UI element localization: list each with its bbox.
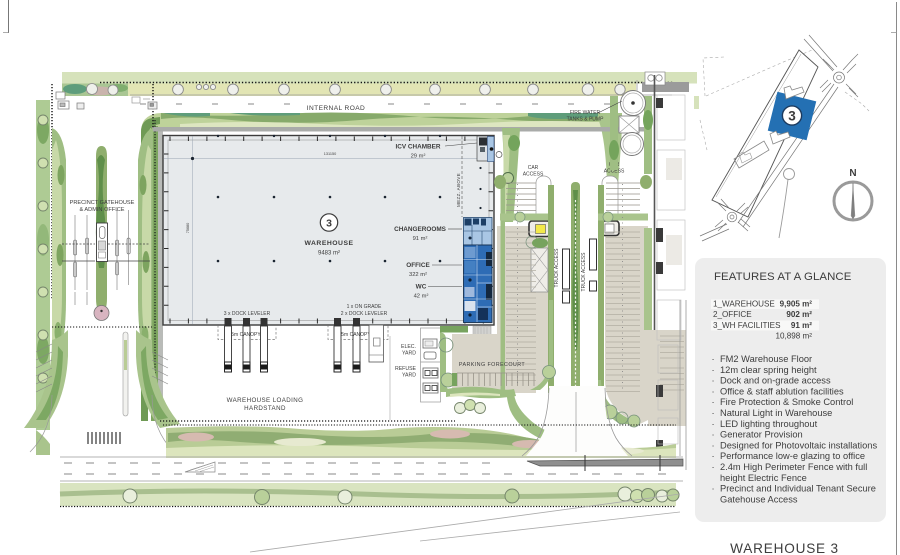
svg-text:FEATURES AT A GLANCE: FEATURES AT A GLANCE [714,271,852,283]
svg-text:91 m²: 91 m² [413,236,428,242]
svg-text:TRUCK ACCESS: TRUCK ACCESS [581,252,587,292]
svg-text:Generator Provision: Generator Provision [720,430,803,440]
svg-text:TANKS & PUMP: TANKS & PUMP [567,117,605,123]
svg-text:12m clear spring height: 12m clear spring height [720,365,817,375]
svg-text:Gatehouse Access: Gatehouse Access [720,494,798,504]
svg-text:YARD: YARD [402,351,416,357]
svg-text:9483 m²: 9483 m² [318,251,340,257]
svg-text:FIRE WATER: FIRE WATER [570,110,601,116]
svg-text:CHANGEROOMS: CHANGEROOMS [394,226,447,233]
svg-text:75680: 75680 [186,223,190,234]
svg-text:& ADMIN OFFICE: & ADMIN OFFICE [79,207,124,213]
svg-text:29 m²: 29 m² [411,154,426,160]
svg-text:91 m²: 91 m² [791,321,812,330]
svg-text:3_WH FACILITIES: 3_WH FACILITIES [713,321,781,330]
svg-text:1_WAREHOUSE: 1_WAREHOUSE [713,299,775,308]
svg-text:WAREHOUSE 3: WAREHOUSE 3 [730,541,839,555]
svg-text:2_OFFICE: 2_OFFICE [713,310,752,319]
svg-text:CAR: CAR [528,165,539,171]
svg-text:·: · [712,484,715,494]
svg-text:·: · [712,365,715,375]
svg-text:1 x ON GRADE: 1 x ON GRADE [347,304,382,310]
svg-text:TRUCK ACCESS: TRUCK ACCESS [554,248,560,288]
svg-text:N: N [849,168,856,179]
svg-text:Performance low-e glazing to o: Performance low-e glazing to office [720,451,865,461]
svg-text:·: · [712,430,715,440]
svg-text:Office & staff ablution facili: Office & staff ablution facilities [720,386,844,396]
svg-text:·: · [712,354,715,364]
svg-text:Precinct and Individual Tenant: Precinct and Individual Tenant Secure [720,484,876,494]
svg-text:REFUSE: REFUSE [395,366,417,372]
svg-text:Designed for Photovoltaic inst: Designed for Photovoltaic installations [720,440,877,450]
svg-text:·: · [712,440,715,450]
svg-text:·: · [712,386,715,396]
svg-text:3 x DOCK LEVELER: 3 x DOCK LEVELER [224,311,271,317]
svg-text:ACCESS: ACCESS [523,172,544,178]
svg-text:3: 3 [788,109,796,124]
svg-text:ICV CHAMBER: ICV CHAMBER [395,144,440,151]
svg-text:·: · [712,397,715,407]
svg-text:WAREHOUSE LOADING: WAREHOUSE LOADING [227,397,304,404]
svg-text:2.4m High Perimeter Fence with: 2.4m High Perimeter Fence with full [720,462,867,472]
svg-text:YARD: YARD [402,373,416,379]
svg-text:WC: WC [416,284,427,291]
svg-text:131150: 131150 [324,152,336,156]
svg-text:Dock and on-grade access: Dock and on-grade access [720,376,831,386]
svg-text:·: · [712,462,715,472]
svg-text:Natural Light in Warehouse: Natural Light in Warehouse [720,408,832,418]
svg-text:PARKING FORECOURT: PARKING FORECOURT [459,362,526,368]
svg-text:9,905 m²: 9,905 m² [780,299,813,308]
svg-text:902 m²: 902 m² [786,310,812,319]
svg-text:·: · [712,451,715,461]
svg-text:HARDSTAND: HARDSTAND [244,405,286,412]
svg-text:3: 3 [326,218,332,230]
svg-text:·: · [712,376,715,386]
svg-text:2 x DOCK LEVELER: 2 x DOCK LEVELER [341,311,388,317]
svg-text:height Electric Fence: height Electric Fence [720,473,807,483]
svg-text:·: · [712,408,715,418]
svg-text:INTERNAL ROAD: INTERNAL ROAD [307,105,365,112]
svg-text:Fire Protection & Smoke Contro: Fire Protection & Smoke Control [720,397,853,407]
svg-text:10,898 m²: 10,898 m² [776,332,813,341]
svg-text:5m CANOPY: 5m CANOPY [231,332,261,338]
svg-text:PRECINCT GATEHOUSE: PRECINCT GATEHOUSE [70,200,135,206]
svg-text:42 m²: 42 m² [414,294,429,300]
svg-text:WAREHOUSE: WAREHOUSE [304,240,353,247]
svg-text:FM2 Warehouse Floor: FM2 Warehouse Floor [720,354,812,364]
svg-text:OFFICE: OFFICE [406,262,430,269]
svg-text:MEZZ. ABOVE: MEZZ. ABOVE [456,173,461,207]
svg-text:5m CANOPY: 5m CANOPY [341,332,371,338]
svg-text:322 m²: 322 m² [409,272,427,278]
svg-text:·: · [712,419,715,429]
svg-text:LED lighting throughout: LED lighting throughout [720,419,818,429]
svg-text:ELEC.: ELEC. [401,344,416,350]
